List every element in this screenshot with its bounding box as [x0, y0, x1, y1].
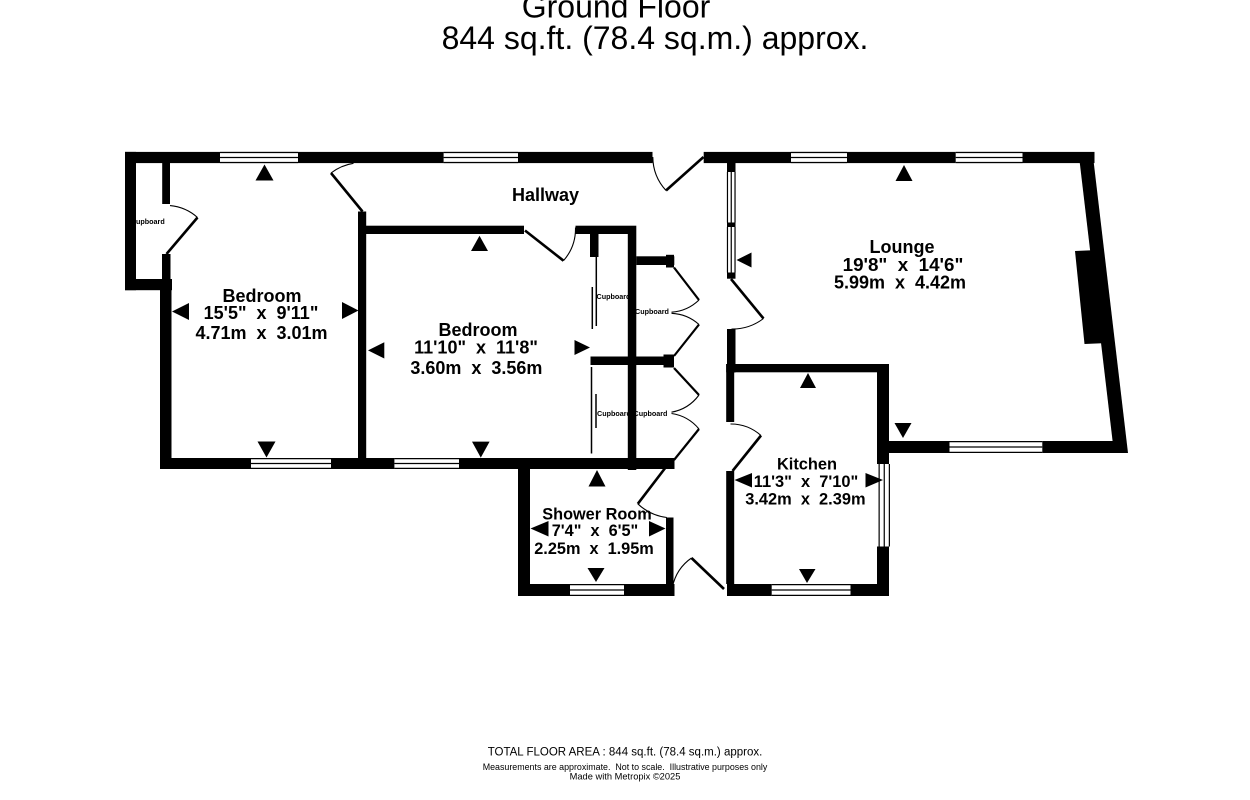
svg-text:11'10" x 11'8": 11'10" x 11'8" — [414, 338, 538, 358]
svg-text:3.42m x 2.39m: 3.42m x 2.39m — [745, 491, 865, 509]
svg-text:Cupboard: Cupboard — [597, 292, 631, 301]
svg-text:4.71m x 3.01m: 4.71m x 3.01m — [195, 323, 327, 343]
svg-text:Measurements are approximate.: Measurements are approximate. Not to sca… — [483, 762, 768, 772]
svg-text:11'3" x 7'10": 11'3" x 7'10" — [754, 473, 858, 491]
svg-text:15'5" x 9'11": 15'5" x 9'11" — [204, 303, 319, 323]
svg-text:upboard: upboard — [136, 217, 165, 226]
svg-text:Cupboard: Cupboard — [635, 307, 669, 316]
svg-text:Made with Metropix ©2025: Made with Metropix ©2025 — [570, 771, 681, 781]
svg-text:3.60m x 3.56m: 3.60m x 3.56m — [410, 358, 542, 378]
svg-text:Kitchen: Kitchen — [777, 456, 837, 474]
svg-text:TOTAL FLOOR AREA : 844 sq.ft.: TOTAL FLOOR AREA : 844 sq.ft. (78.4 sq.m… — [488, 746, 763, 758]
svg-text:Cupboard: Cupboard — [634, 409, 668, 418]
svg-text:Cupboard: Cupboard — [597, 409, 631, 418]
svg-text:7'4" x 6'5": 7'4" x 6'5" — [552, 522, 639, 540]
svg-text:5.99m x 4.42m: 5.99m x 4.42m — [834, 273, 966, 293]
svg-text:2.25m x 1.95m: 2.25m x 1.95m — [534, 540, 653, 558]
svg-text:Hallway: Hallway — [512, 185, 579, 205]
svg-text:844 sq.ft. (78.4 sq.m.) approx: 844 sq.ft. (78.4 sq.m.) approx. — [442, 20, 869, 56]
svg-text:Shower Room: Shower Room — [542, 506, 651, 524]
